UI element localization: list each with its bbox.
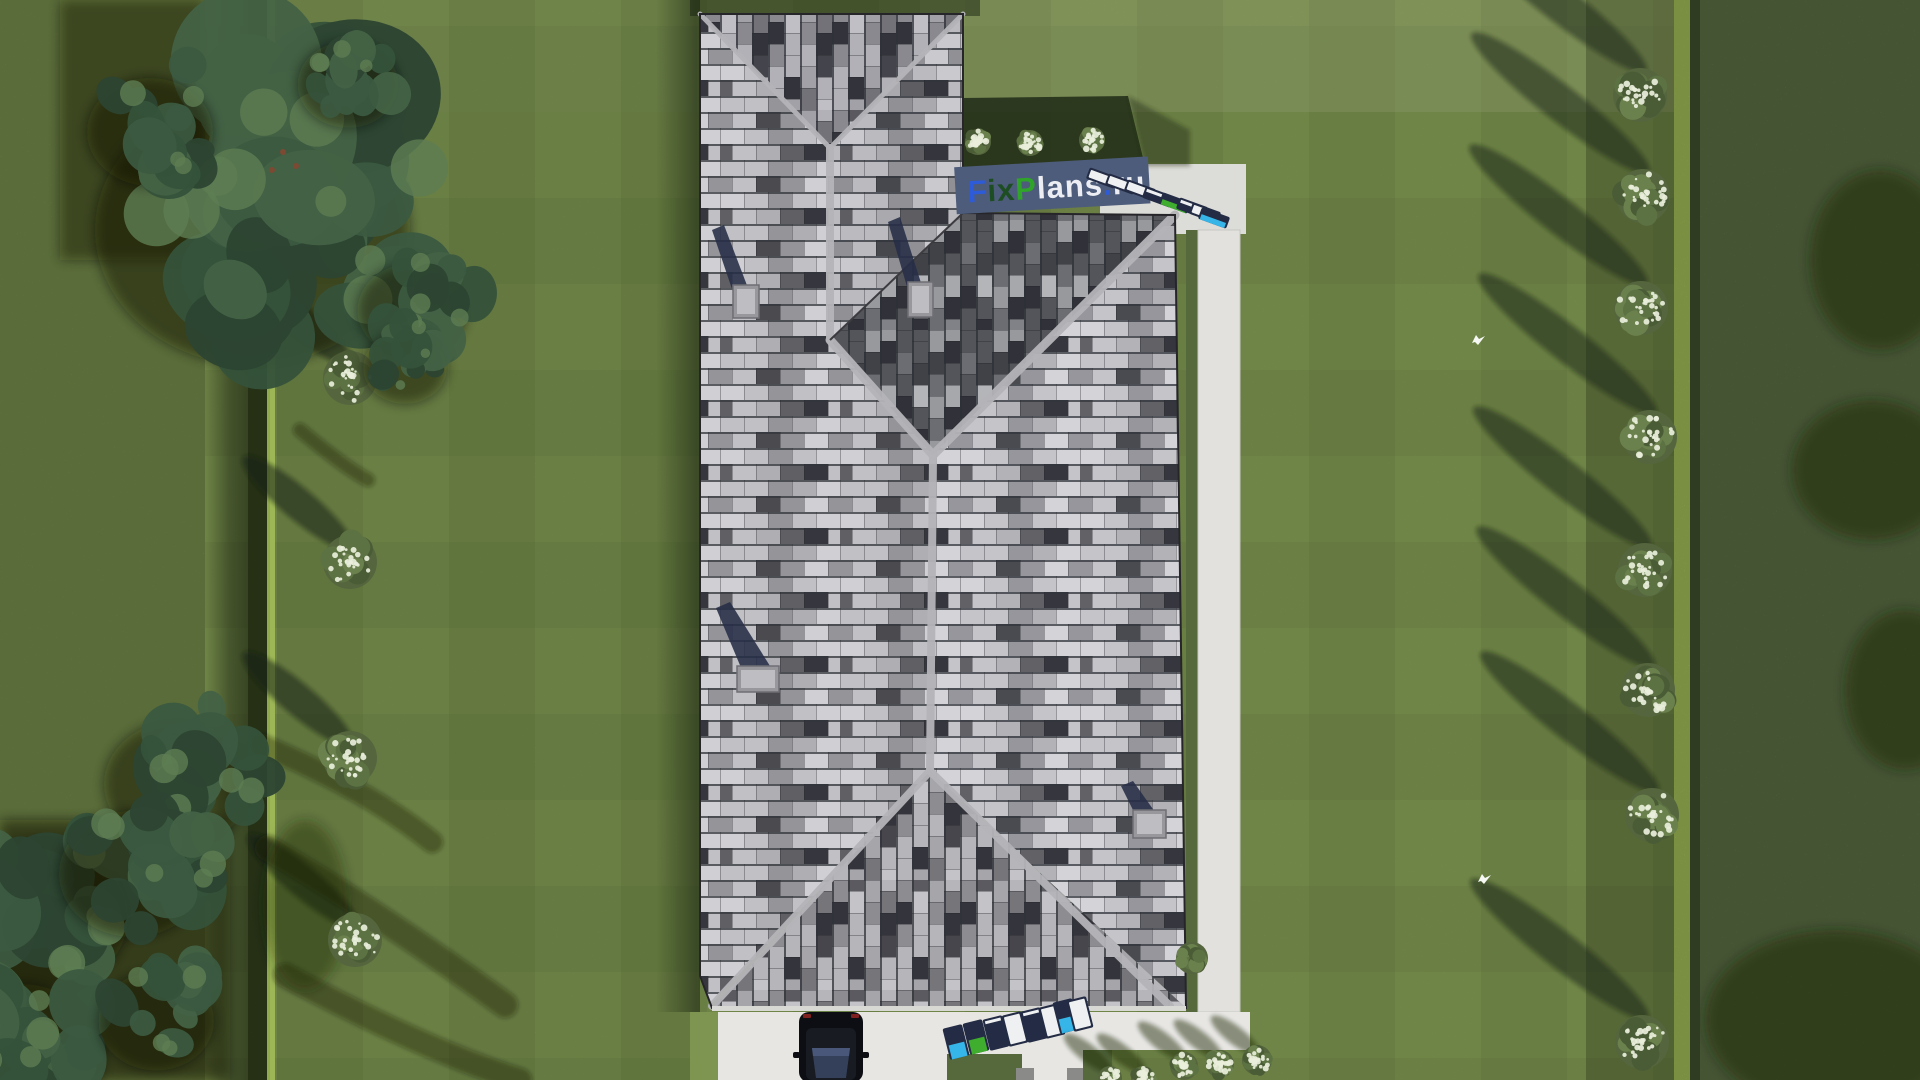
aerial-site-render: FixPlans.ru [0,0,1920,1080]
watermark-letter: ix [986,172,1016,209]
car-mirror [793,1052,800,1058]
side-grass-strip [1186,230,1198,1012]
car-taillight [803,1014,811,1018]
flowering-shrub [965,129,991,155]
tree-twigs [269,167,275,173]
right-meadow-texture [1700,0,1920,1080]
roof-ridge [930,455,933,771]
roof-chimney-cap [737,289,755,314]
scene-canvas: FixPlans.ru [0,0,1920,1080]
driveway-dark-strip [1067,1068,1083,1080]
roof-chimney-cap [741,670,775,688]
right-hedge-texture [1674,0,1690,1080]
car-taillight [851,1014,859,1018]
right-hedge-dark-edge [1690,0,1700,1080]
flowering-shrub [1613,68,1667,122]
roof-chimney-cap [1137,814,1162,834]
tree-twigs [280,149,286,155]
roof-chimney-cap [912,286,929,313]
parked-car [793,1012,869,1080]
tree-shadow-blob [263,820,347,990]
eave-fascia [712,1006,1186,1011]
lawn-notch-bottom-left [690,1012,718,1080]
tree-twigs [293,163,299,169]
driveway-dark-strip [1016,1068,1034,1080]
car-mirror [862,1052,869,1058]
right-outer-meadow [1700,0,1920,1080]
side-path [1198,230,1240,1012]
shaded-bed [963,96,1145,168]
west-wall-shadow [656,0,700,1012]
watermark-letter: F [967,173,989,209]
watermark-letter: P [1014,171,1038,207]
car-windshield-glare [812,1048,850,1056]
